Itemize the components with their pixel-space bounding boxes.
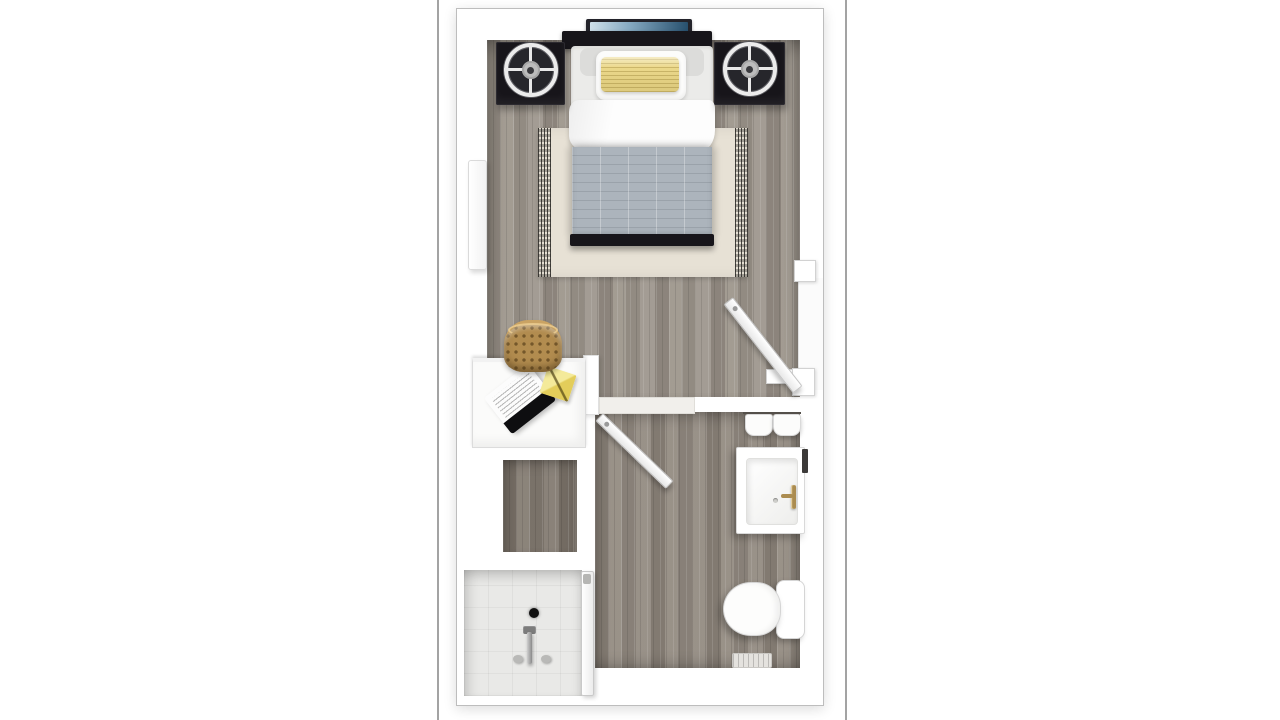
shower-glass-hinge [583,574,591,584]
rug-fringe-right [735,128,748,277]
wall-mirror [468,160,487,270]
sink-drain [773,498,778,503]
shower-handle-left [513,655,523,663]
wicker-chair [504,320,562,372]
fan-hub [741,60,759,78]
plan-border-left [437,0,439,720]
floor-vent [732,653,772,668]
gray-grid-duvet [572,147,712,237]
closet-floor [503,460,577,552]
fan-hub-dot [527,67,534,74]
fan-hub-dot [746,66,753,73]
sink-basin [746,458,798,525]
fan-icon-left [504,43,558,97]
fan-icon-right [723,42,777,96]
vanity-handle [802,449,808,473]
entry-door-jamb-top [794,260,816,282]
shower-drain [529,608,539,618]
bed-end-bench [570,234,714,246]
vanity-cabinet [736,447,805,534]
entry-door-knob [732,305,739,312]
rug-fringe-left [538,128,551,277]
towel [745,414,773,436]
fan-hub [522,61,540,79]
shower-glass-door [581,571,594,696]
plan-border-right [845,0,847,720]
shower-handle-right [541,655,551,663]
gold-faucet-spout [781,494,793,498]
yellow-striped-pillow [601,57,679,92]
towel [773,414,801,436]
floor-plan-stage [0,0,1280,720]
toilet-bowl [723,582,781,636]
shower-faucet-pipe [527,632,532,664]
wicker-chair-rim [508,323,558,337]
white-blanket [569,100,715,152]
bathroom-door-knob [603,421,610,428]
bathroom-door-threshold [599,397,695,414]
